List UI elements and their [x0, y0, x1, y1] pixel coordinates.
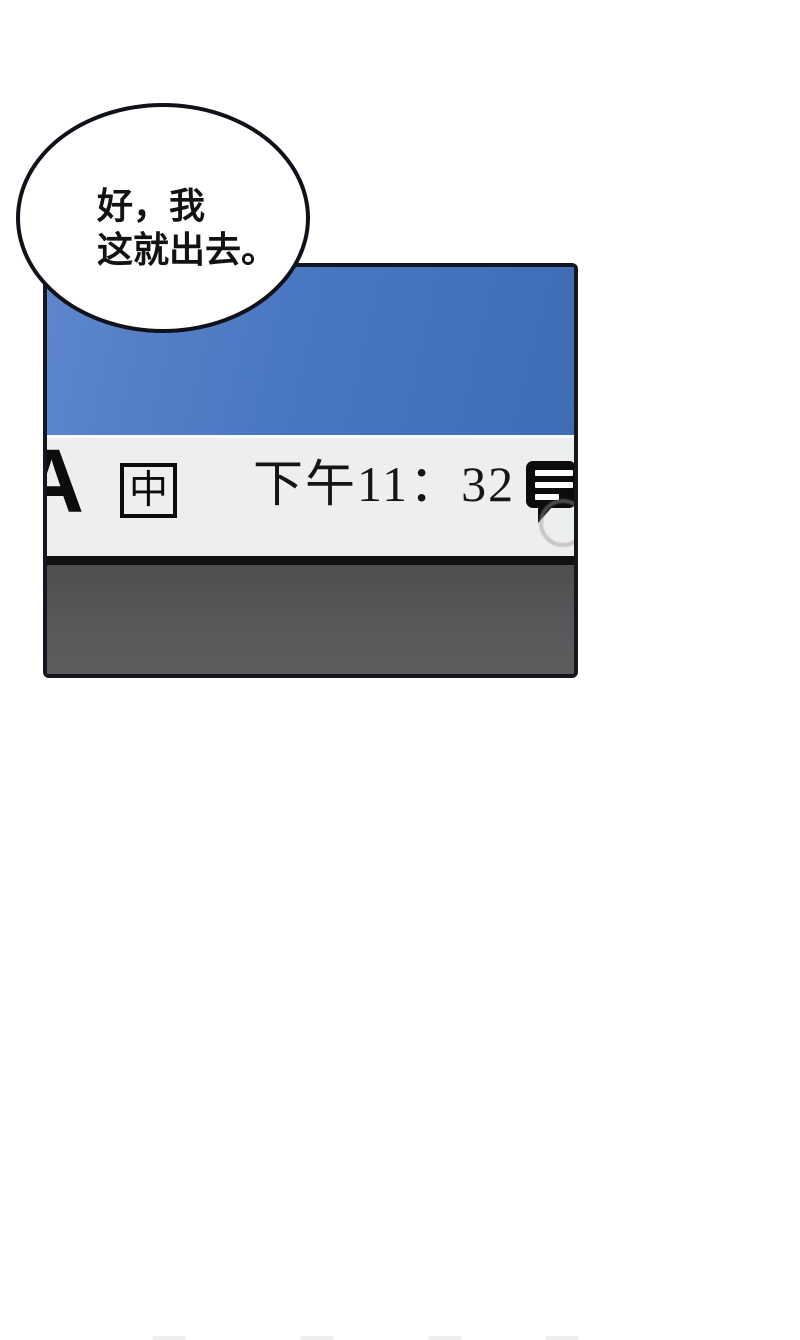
speech-line-2: 这就出去。: [97, 229, 277, 273]
speech-line-1: 好，我: [97, 185, 277, 229]
next-panel-edge-hint: [0, 1336, 800, 1340]
comic-page: A 中 下午11：32 好，我 这就出去。: [0, 0, 800, 1340]
taskbar-separator: [47, 556, 574, 565]
ime-letter-indicator[interactable]: A: [43, 437, 84, 527]
taskbar-clock[interactable]: 下午11：32: [253, 459, 515, 509]
ime-language-button[interactable]: 中: [120, 463, 177, 518]
screen-bottom-bezel: [47, 565, 574, 674]
circle-sketch-icon: [539, 499, 578, 547]
notification-line: [535, 470, 573, 476]
speech-bubble-text: 好，我 这就出去。: [97, 185, 277, 273]
ime-language-label: 中: [129, 471, 168, 510]
taskbar: A 中 下午11：32: [47, 435, 574, 556]
notification-line: [535, 482, 573, 488]
